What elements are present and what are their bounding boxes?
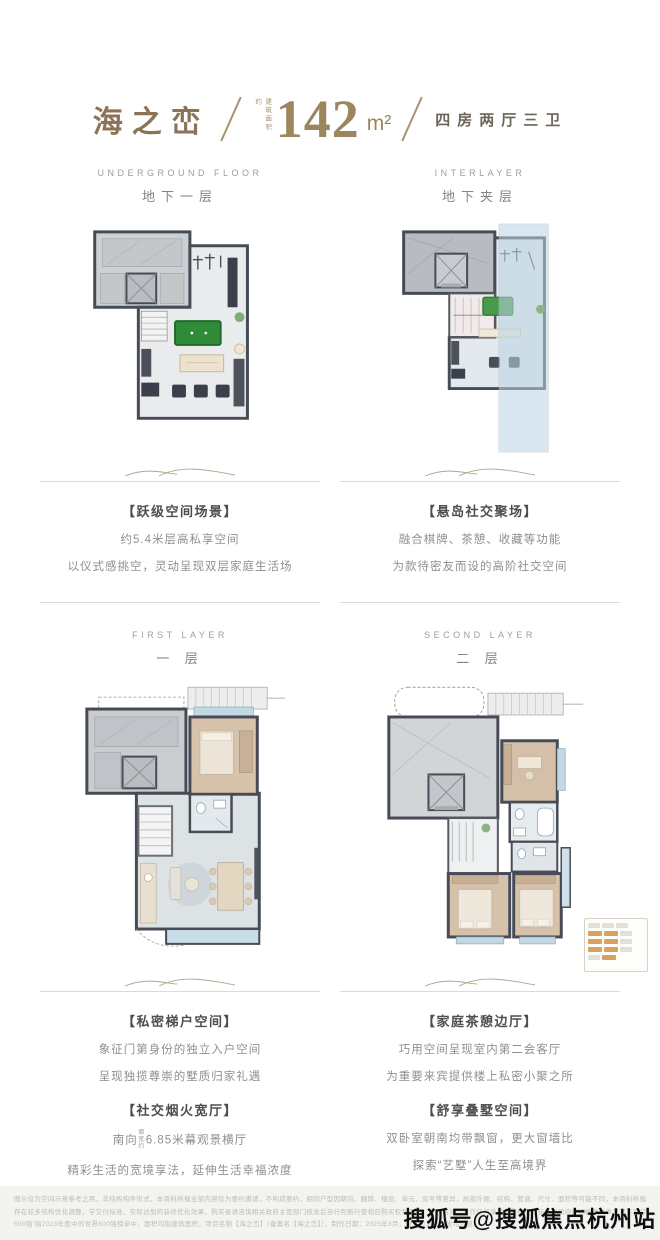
area-prefix-label: 建筑面积约 — [252, 98, 272, 140]
caption-second-1: 【家庭茶憩边厅】 巧用空间呈现室内第二会客厅 为重要来宾提供楼上私密小聚之所 — [340, 992, 620, 1090]
caption-line-prefix: 南向 — [113, 1134, 138, 1146]
floorplan-interlayer-drawing — [383, 218, 578, 456]
caption-title: 【悬岛社交聚场】 — [340, 501, 620, 520]
sofa — [170, 868, 181, 900]
canopy-outline — [99, 697, 184, 709]
floor-title-en: INTERLAYER — [340, 168, 620, 178]
side-balcony — [561, 848, 570, 907]
slash-divider — [220, 97, 241, 142]
bar-table — [180, 355, 224, 372]
floorplan-interlayer — [340, 211, 620, 463]
chair — [525, 771, 534, 780]
bathtub — [537, 808, 553, 836]
sohu-watermark: 搜狐号@搜狐焦点杭州站 — [404, 1202, 656, 1234]
caption-title: 【社交烟火宽厅】 — [40, 1100, 320, 1119]
caption-line: 南向面宽约6.85米幕观景横厅 — [40, 1130, 320, 1151]
void-overlay — [498, 224, 548, 452]
theater-seats — [172, 385, 230, 398]
floorplan-second-drawing — [371, 679, 589, 967]
project-name: 海之峦 — [93, 97, 210, 141]
kitchen-counter — [140, 864, 156, 923]
interlayer-column: INTERLAYER 地下夹层 — [340, 168, 620, 603]
caption-line: 象征门第身份的独立入户空间 — [40, 1041, 320, 1057]
mini-legend-stamp — [584, 918, 648, 972]
bay-window — [456, 937, 504, 944]
floor-title-cn: 地下夹层 — [340, 186, 620, 205]
divider-line — [340, 602, 620, 603]
mountain-motif — [40, 973, 320, 991]
floorplan-poster: { "header": { "brand": "海之峦", "area_pref… — [0, 0, 660, 1240]
caption-line: 约5.4米层高私享空间 — [40, 531, 320, 547]
exterior-stairs — [488, 693, 563, 715]
caption-line-rest: 6.85米幕观景横厅 — [146, 1134, 247, 1146]
first-layer-column: FIRST LAYER 一 层 — [40, 630, 320, 1184]
stairs — [141, 311, 167, 341]
billiard-table — [175, 321, 221, 345]
floorplan-first-drawing — [71, 679, 289, 967]
caption-line: 以仪式感挑空，灵动呈现双层家庭生活场 — [40, 558, 320, 574]
mountain-motif — [340, 973, 620, 991]
underground-floor-column: UNDERGROUND FLOOR 地下一层 — [40, 168, 320, 603]
floor-title-second: SECOND LAYER 二 层 — [340, 630, 620, 667]
balcony — [166, 929, 259, 944]
caption-second-2: 【舒享叠墅空间】 双卧室朝南均带飘窗，更大窗墙比 探索“艺墅”人生至高境界 — [340, 1090, 620, 1179]
header: 海之峦 建筑面积约 142 m² 四房两厅三卫 — [0, 84, 660, 154]
floorplan-first — [40, 673, 320, 973]
caption-underground: 【跃级空间场景】 约5.4米层高私享空间 以仪式感挑空，灵动呈现双层家庭生活场 — [40, 482, 320, 580]
desk — [518, 757, 542, 769]
floor-title-underground: UNDERGROUND FLOOR 地下一层 — [40, 168, 320, 205]
equipment-rack — [228, 258, 238, 308]
wardrobe — [516, 876, 556, 884]
floor-title-interlayer: INTERLAYER 地下夹层 — [340, 168, 620, 205]
caption-title: 【私密梯户空间】 — [40, 1011, 320, 1030]
stairs — [138, 806, 172, 856]
caption-first-1: 【私密梯户空间】 象征门第身份的独立入户空间 呈现独揽尊崇的墅质归家礼遇 — [40, 992, 320, 1090]
window-strip — [557, 749, 565, 791]
caption-line-smallnote: 面宽约 — [138, 1130, 146, 1151]
plant — [481, 823, 490, 832]
floor-title-en: SECOND LAYER — [340, 630, 620, 640]
mountain-motif — [40, 463, 320, 481]
tv-wall — [254, 848, 259, 900]
caption-line: 呈现独揽尊崇的墅质归家礼遇 — [40, 1068, 320, 1084]
balcony-strip — [194, 707, 253, 717]
floorplan-second — [340, 673, 620, 973]
layout-label: 四房两厅三卫 — [435, 109, 567, 130]
floor-title-cn: 地下一层 — [40, 186, 320, 205]
bay-window — [520, 937, 556, 944]
floor-title-cn: 二 层 — [340, 648, 620, 667]
caption-line: 为款待密友而设的高阶社交空间 — [340, 558, 620, 574]
caption-line: 为重要来宾提供楼上私密小聚之所 — [340, 1068, 620, 1084]
caption-interlayer: 【悬岛社交聚场】 融合棋牌、茶憩、收藏等功能 为款待密友而设的高阶社交空间 — [340, 482, 620, 580]
media-wall — [234, 359, 245, 407]
caption-line: 巧用空间呈现室内第二会客厅 — [340, 1041, 620, 1057]
floor-title-cn: 一 层 — [40, 648, 320, 667]
area-group: 建筑面积约 142 m² — [252, 92, 392, 146]
floor-title-en: UNDERGROUND FLOOR — [40, 168, 320, 178]
caption-line: 精彩生活的宽境享法，延伸生活幸福浓度 — [40, 1162, 320, 1178]
wardrobe — [239, 731, 252, 773]
caption-first-2: 【社交烟火宽厅】 南向面宽约6.85米幕观景横厅 精彩生活的宽境享法，延伸生活幸… — [40, 1090, 320, 1184]
plant — [235, 312, 245, 322]
caption-line: 融合棋牌、茶憩、收藏等功能 — [340, 531, 620, 547]
caption-title: 【舒享叠墅空间】 — [340, 1100, 620, 1119]
floorplan-underground — [40, 211, 320, 463]
caption-title: 【跃级空间场景】 — [40, 501, 320, 520]
divider-line — [40, 602, 320, 603]
area-value: 142 — [276, 92, 360, 146]
floorplan-underground-drawing — [80, 218, 280, 456]
floor-title-first: FIRST LAYER 一 层 — [40, 630, 320, 667]
floor-title-en: FIRST LAYER — [40, 630, 320, 640]
second-layer-column: SECOND LAYER 二 层 — [340, 630, 620, 1179]
canopy-outline — [395, 687, 484, 717]
caption-title: 【家庭茶憩边厅】 — [340, 1011, 620, 1030]
dining-table — [218, 863, 244, 911]
cabinet — [141, 349, 151, 377]
area-unit: m² — [367, 112, 392, 136]
bookshelf — [504, 745, 512, 785]
caption-line: 双卧室朝南均带飘窗，更大窗墙比 — [340, 1130, 620, 1146]
wardrobe — [452, 876, 498, 884]
caption-line: 探索“艺墅”人生至高境界 — [340, 1157, 620, 1173]
mountain-motif — [340, 463, 620, 481]
plant — [536, 305, 545, 314]
slash-divider — [402, 97, 423, 142]
